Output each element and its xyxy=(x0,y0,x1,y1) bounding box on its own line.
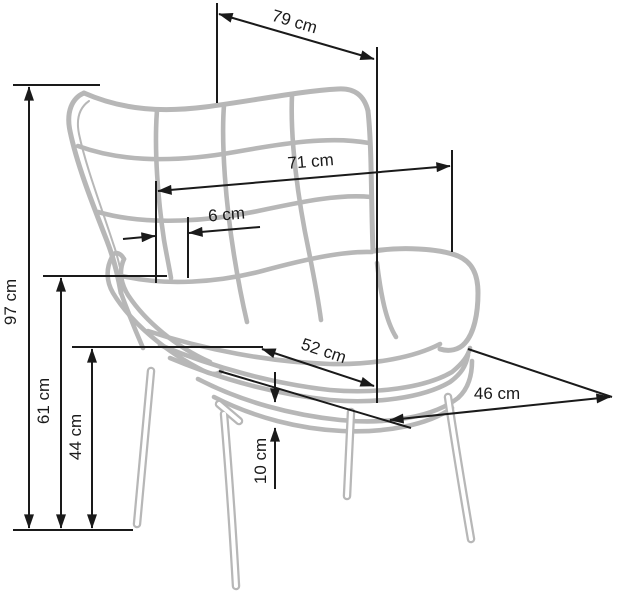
quilt-seam-vertical-1 xyxy=(156,110,171,278)
dim-6-arrow-right xyxy=(189,227,260,233)
label-seat-height: 44 cm xyxy=(66,414,85,460)
diagram-canvas: 79 cm 71 cm 6 cm 97 cm 61 cm 44 cm 52 cm… xyxy=(0,0,620,609)
dim-6-arrow-left xyxy=(123,236,155,239)
label-wing-offset: 6 cm xyxy=(207,203,245,225)
armchair-dimension-diagram: 79 cm 71 cm 6 cm 97 cm 61 cm 44 cm 52 cm… xyxy=(0,0,620,609)
front-left-leg-fill xyxy=(137,371,151,524)
chair-back-left-edge xyxy=(69,93,121,293)
label-back-width: 71 cm xyxy=(287,150,335,173)
right-armrest-inner xyxy=(377,263,396,337)
right-armrest-outer xyxy=(374,249,478,351)
front-right-leg-fill xyxy=(448,397,471,539)
chair-drawing xyxy=(69,89,478,586)
label-top-width: 79 cm xyxy=(270,6,320,37)
chair-back-left-piping xyxy=(78,101,124,287)
label-total-height: 97 cm xyxy=(1,279,20,325)
quilt-seam-vertical-3 xyxy=(292,95,321,320)
label-cushion-thickness: 10 cm xyxy=(251,438,270,484)
label-seat-depth: 46 cm xyxy=(474,384,520,403)
chair-back-right-edge xyxy=(368,111,373,251)
label-armrest-height: 61 cm xyxy=(34,378,53,424)
